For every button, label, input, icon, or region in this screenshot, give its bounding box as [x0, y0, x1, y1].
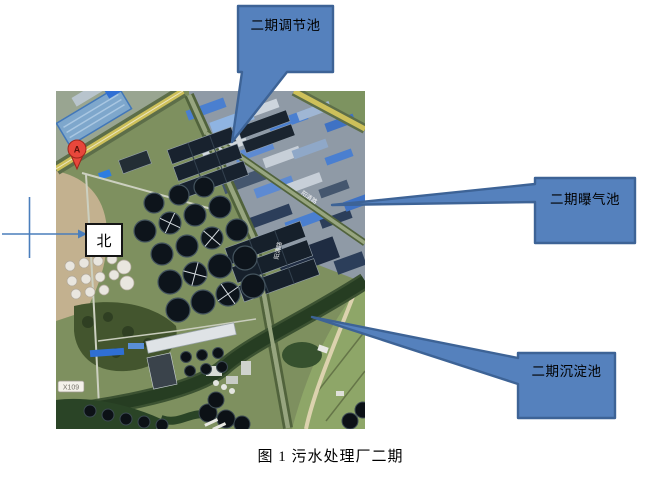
callout-regulating-label: 二期调节池 — [238, 14, 333, 34]
map-road-sign: X109 — [58, 381, 84, 392]
north-indicator: 北 — [85, 223, 123, 257]
callout-sedimentation-label: 二期沉淀池 — [518, 360, 615, 380]
callout-aeration-shape — [332, 178, 635, 243]
satellite-map-image: X109 阳清路 阳清路 A — [56, 91, 365, 429]
figure-caption: 图 1 污水处理厂二期 — [0, 445, 661, 466]
road-sign-text: X109 — [63, 385, 79, 392]
pin-letter: A — [74, 145, 81, 155]
document-page: X109 阳清路 阳清路 A 二期调节池 二期曝气池 二期沉淀池 北 图 1 污… — [0, 0, 661, 499]
callout-aeration-label: 二期曝气池 — [535, 188, 635, 208]
